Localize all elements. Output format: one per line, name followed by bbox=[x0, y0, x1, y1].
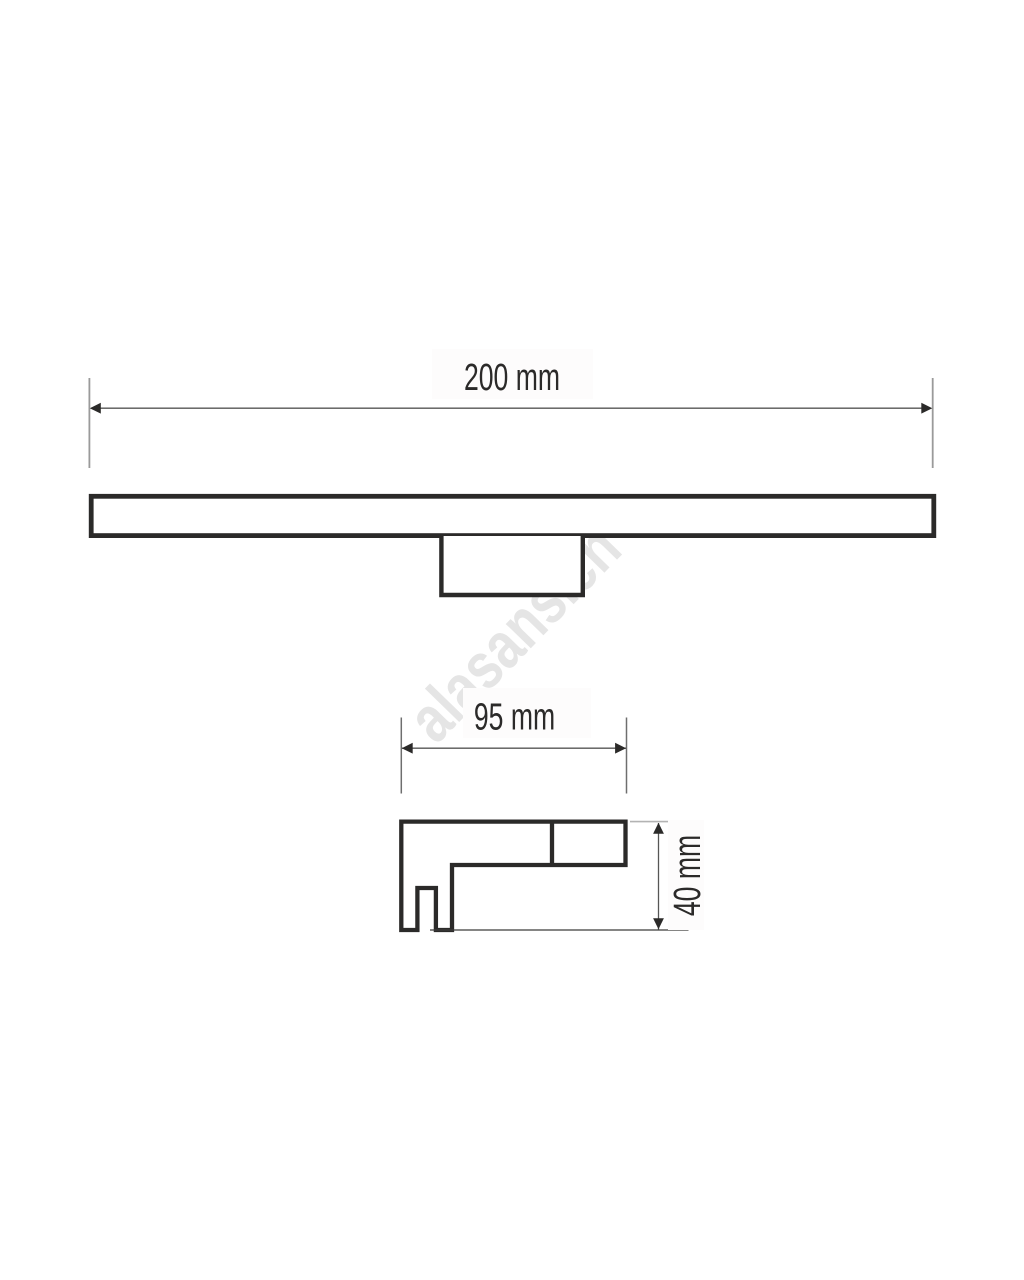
svg-text:200 mm: 200 mm bbox=[464, 355, 560, 398]
svg-text:95 mm: 95 mm bbox=[474, 695, 555, 738]
svg-text:40 mm: 40 mm bbox=[665, 835, 708, 916]
